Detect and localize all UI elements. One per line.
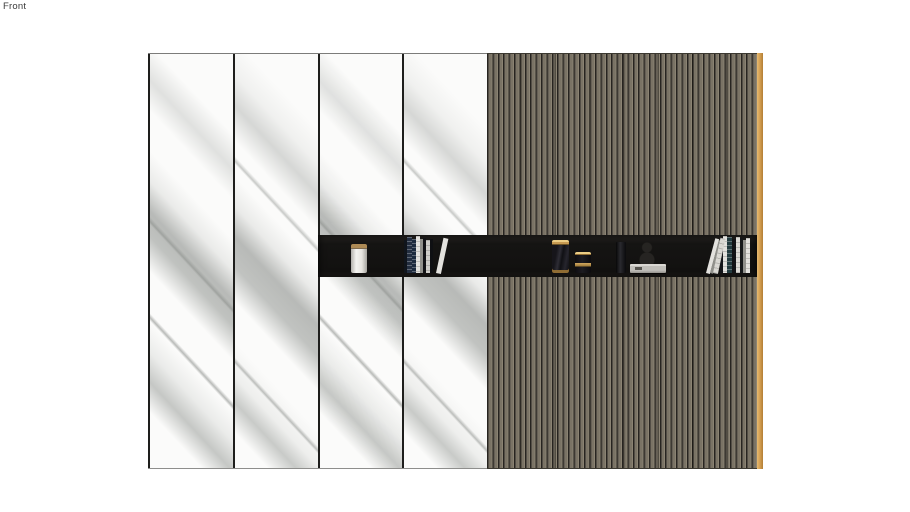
wood-edge-strip[interactable] bbox=[757, 53, 763, 469]
short-gold-trim-canister[interactable] bbox=[575, 252, 591, 273]
gray-tray[interactable] bbox=[630, 264, 666, 273]
white-canister[interactable] bbox=[351, 244, 367, 273]
book-stack-right[interactable] bbox=[706, 233, 750, 273]
modeling-viewport: Front bbox=[0, 0, 910, 512]
book-spine bbox=[430, 239, 433, 273]
tall-gold-trim-canister[interactable] bbox=[552, 240, 569, 273]
display-niche[interactable] bbox=[318, 235, 757, 277]
feature-wall[interactable] bbox=[148, 53, 763, 469]
viewport-axis-label: Front bbox=[3, 1, 26, 12]
book-spine bbox=[746, 238, 750, 273]
marble-panel-1[interactable] bbox=[148, 54, 233, 468]
dark-bottle[interactable] bbox=[616, 242, 626, 273]
marble-panel-2[interactable] bbox=[233, 54, 318, 468]
leaning-book bbox=[436, 238, 448, 274]
book-stack-left[interactable] bbox=[404, 233, 441, 273]
